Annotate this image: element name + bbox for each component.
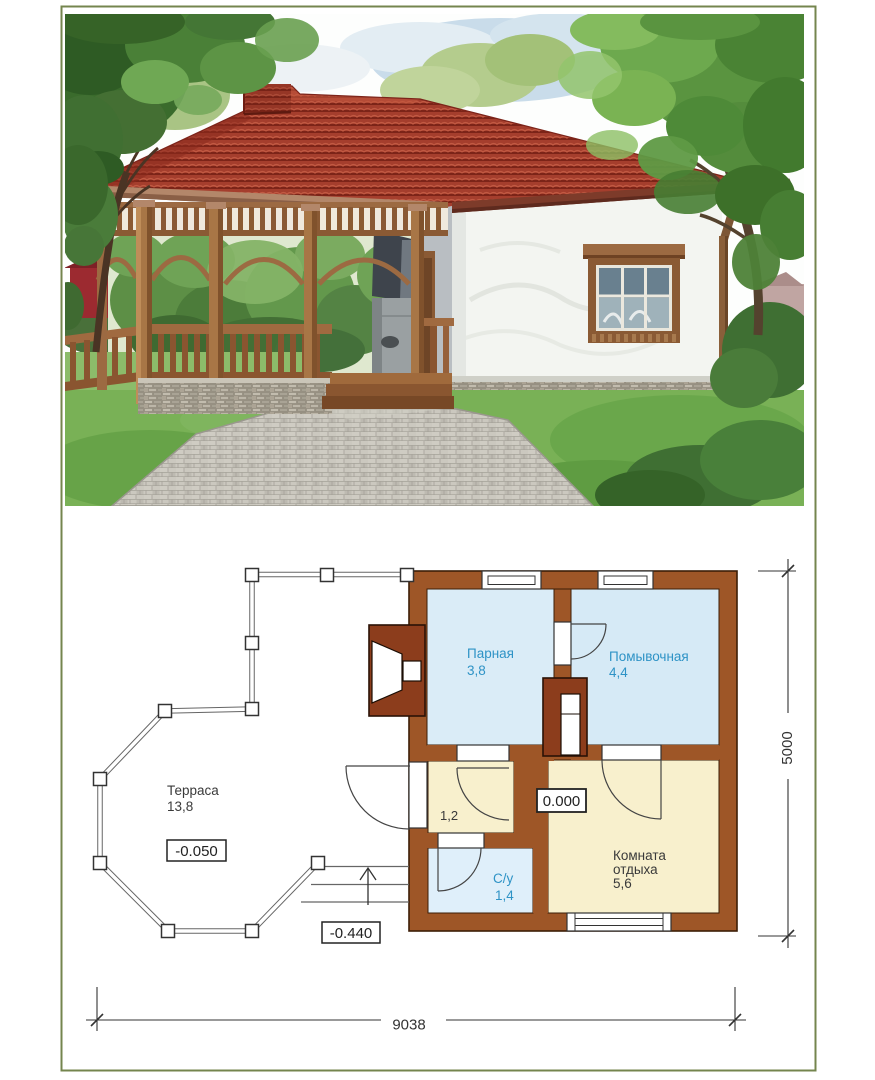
svg-text:5,6: 5,6 — [613, 876, 632, 891]
svg-text:5000: 5000 — [779, 731, 796, 764]
svg-text:Терраса: Терраса — [167, 783, 219, 798]
svg-text:13,8: 13,8 — [167, 799, 193, 814]
svg-text:Парная: Парная — [467, 646, 514, 661]
svg-text:-0.440: -0.440 — [330, 925, 373, 942]
svg-text:С/у: С/у — [493, 871, 514, 886]
svg-text:0.000: 0.000 — [543, 793, 581, 810]
svg-text:-0.050: -0.050 — [175, 843, 218, 860]
svg-text:Комната: Комната — [613, 848, 666, 863]
svg-text:3,8: 3,8 — [467, 663, 486, 678]
svg-text:отдыха: отдыха — [613, 862, 658, 877]
svg-text:4,4: 4,4 — [609, 665, 628, 680]
svg-text:1,4: 1,4 — [495, 888, 514, 903]
svg-text:9038: 9038 — [392, 1017, 425, 1034]
svg-text:1,2: 1,2 — [440, 808, 458, 823]
svg-text:Помывочная: Помывочная — [609, 649, 689, 664]
